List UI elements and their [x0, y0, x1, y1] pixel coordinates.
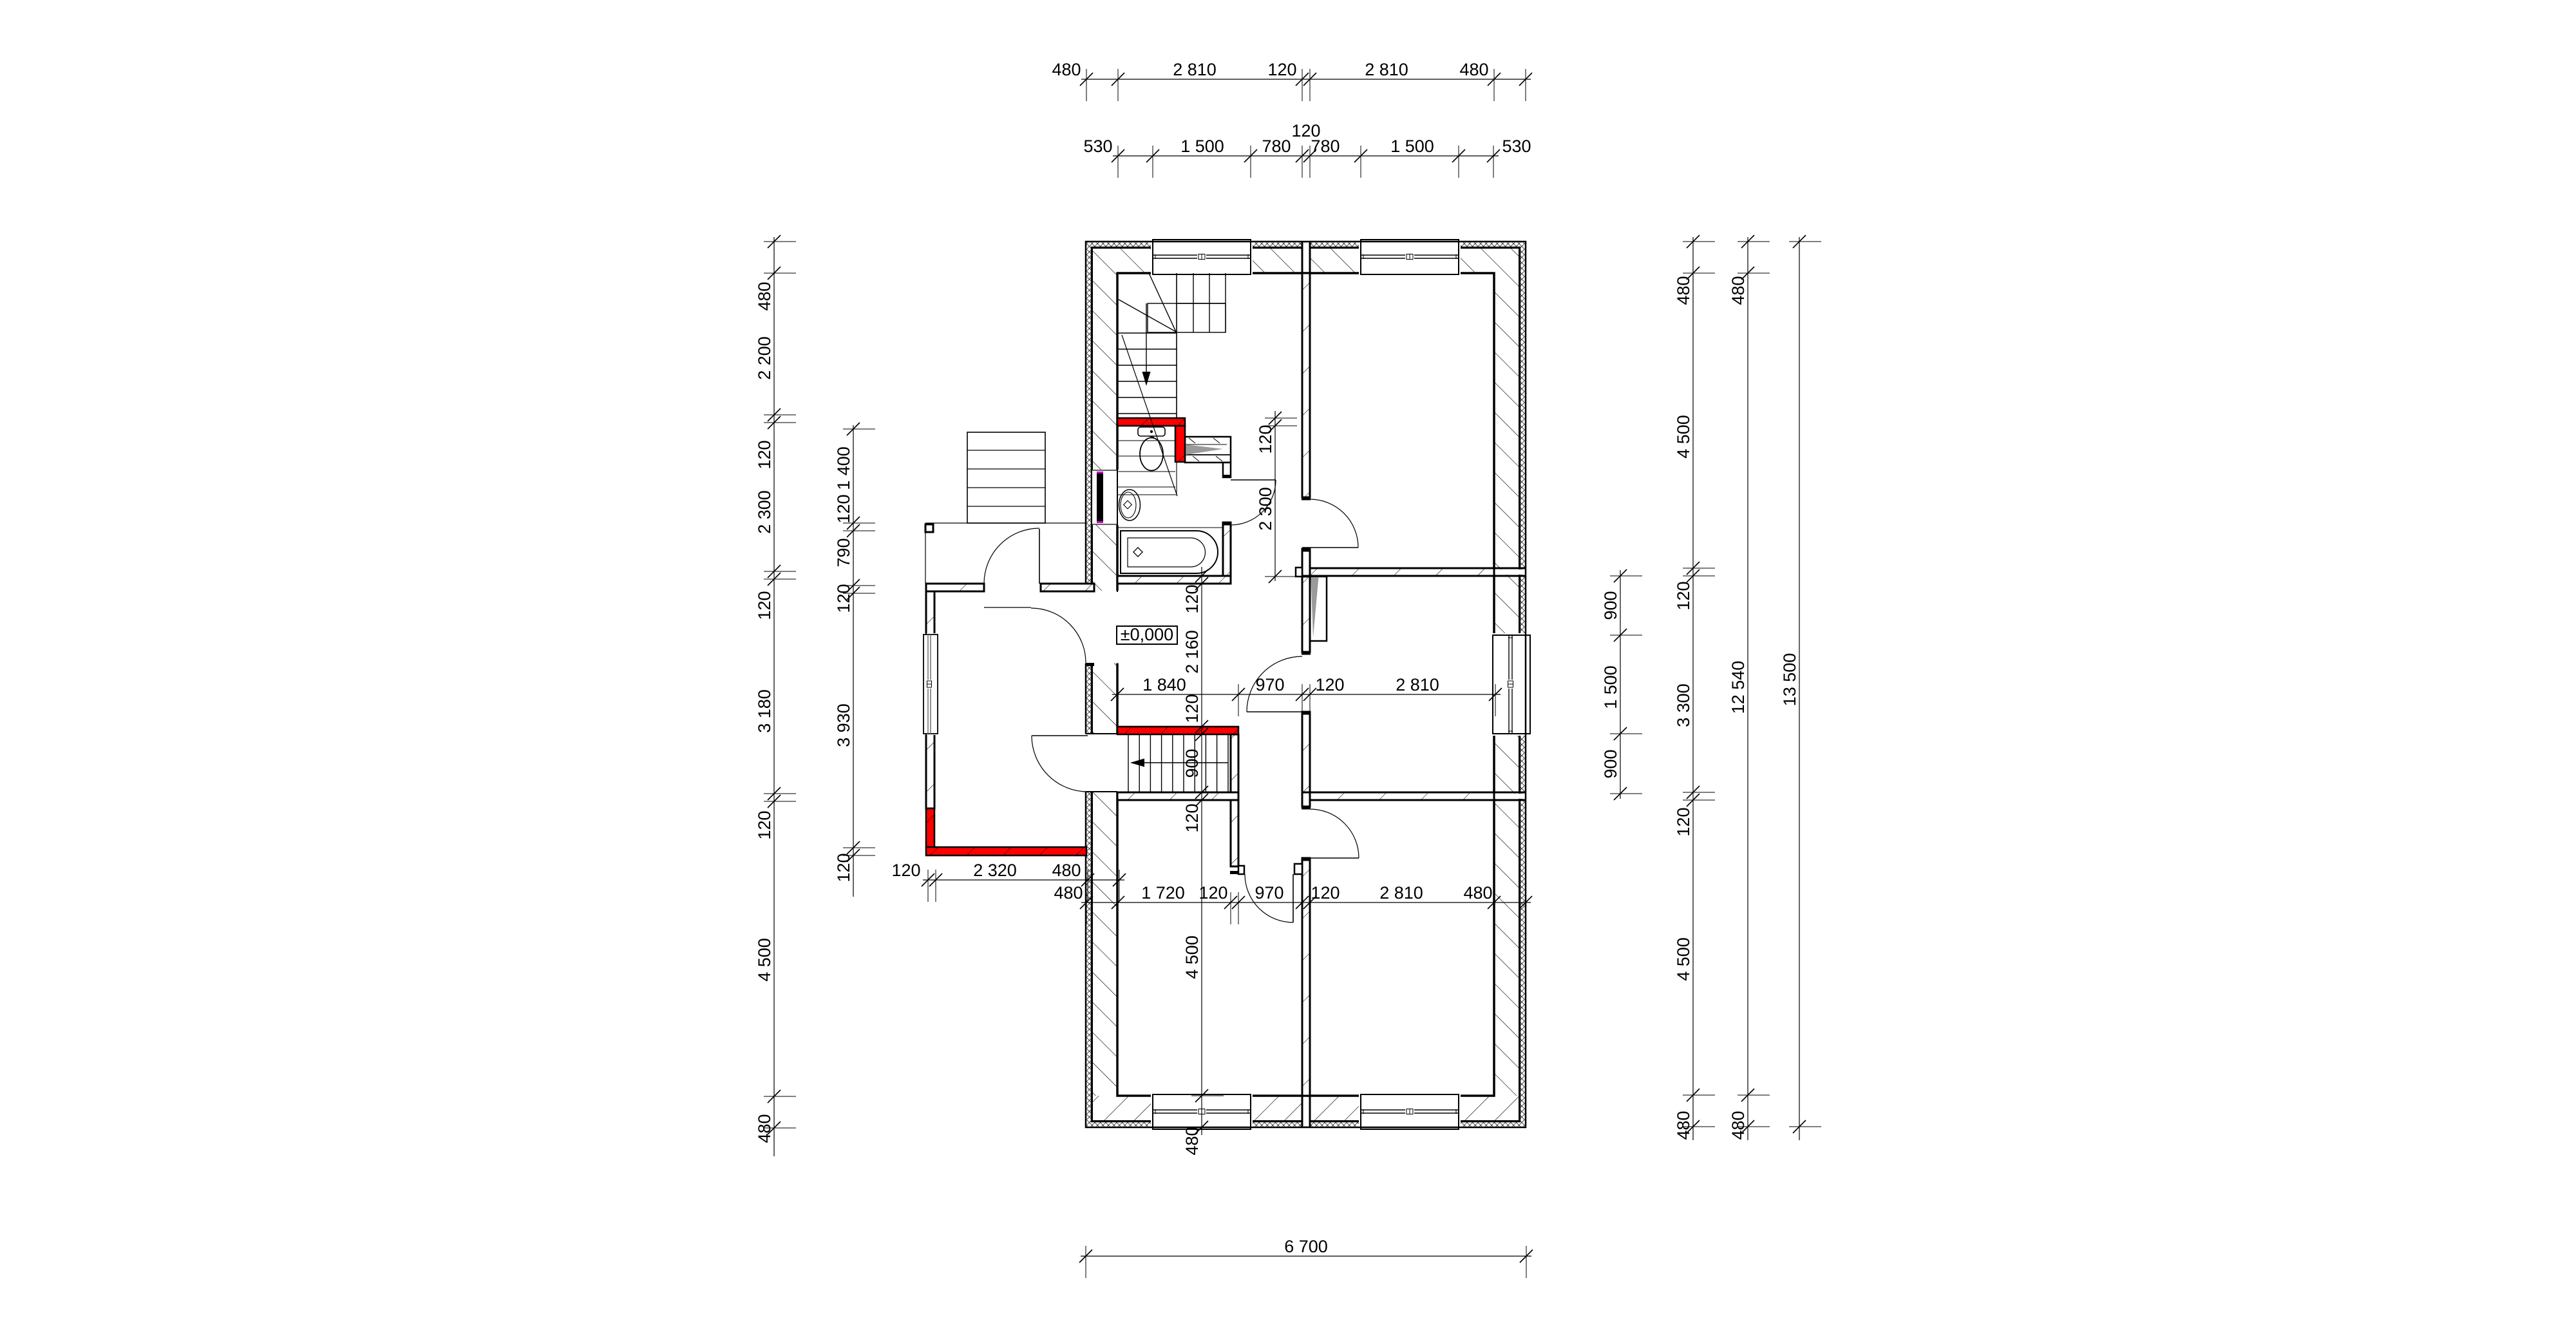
- svg-text:790: 790: [834, 538, 853, 567]
- svg-text:120: 120: [1291, 121, 1320, 140]
- svg-text:970: 970: [1255, 675, 1284, 694]
- svg-text:6 700: 6 700: [1284, 1237, 1328, 1256]
- svg-text:4 500: 4 500: [1674, 415, 1693, 459]
- svg-text:530: 530: [1083, 137, 1112, 156]
- svg-text:120: 120: [834, 494, 853, 523]
- svg-text:480: 480: [1054, 883, 1083, 902]
- svg-text:120: 120: [1315, 675, 1344, 694]
- svg-text:1 500: 1 500: [1180, 137, 1224, 156]
- svg-text:120: 120: [1198, 883, 1227, 902]
- svg-text:2 810: 2 810: [1379, 883, 1423, 902]
- svg-text:480: 480: [1182, 1126, 1202, 1155]
- svg-text:480: 480: [1674, 276, 1693, 305]
- svg-text:120: 120: [1256, 425, 1275, 453]
- svg-text:2 810: 2 810: [1396, 675, 1439, 694]
- svg-text:2 810: 2 810: [1173, 60, 1217, 79]
- svg-text:4 500: 4 500: [1182, 935, 1202, 979]
- svg-text:120: 120: [1182, 694, 1202, 723]
- svg-text:480: 480: [1459, 60, 1488, 79]
- svg-text:120: 120: [1311, 883, 1340, 902]
- svg-text:480: 480: [755, 1114, 774, 1143]
- svg-text:4 500: 4 500: [1674, 937, 1693, 981]
- svg-text:970: 970: [1255, 883, 1283, 902]
- svg-text:120: 120: [755, 810, 774, 839]
- svg-text:2 810: 2 810: [1365, 60, 1408, 79]
- svg-text:2 300: 2 300: [755, 490, 774, 534]
- svg-text:120: 120: [1267, 60, 1296, 79]
- svg-text:480: 480: [1052, 60, 1081, 79]
- svg-text:480: 480: [1728, 1111, 1748, 1140]
- svg-text:120: 120: [1182, 803, 1202, 832]
- svg-text:13 500: 13 500: [1780, 653, 1799, 707]
- svg-text:120: 120: [755, 440, 774, 469]
- svg-text:530: 530: [1502, 137, 1531, 156]
- svg-text:1 400: 1 400: [834, 446, 853, 490]
- svg-text:120: 120: [1182, 584, 1202, 613]
- svg-text:1 500: 1 500: [1390, 137, 1434, 156]
- svg-text:3 930: 3 930: [834, 703, 853, 747]
- svg-text:1 500: 1 500: [1601, 665, 1620, 709]
- svg-text:2 160: 2 160: [1182, 630, 1202, 674]
- svg-text:480: 480: [1674, 1111, 1693, 1140]
- svg-text:120: 120: [1674, 581, 1693, 610]
- svg-text:3 300: 3 300: [1674, 683, 1693, 727]
- svg-text:900: 900: [1182, 749, 1202, 778]
- svg-text:2 300: 2 300: [1256, 487, 1275, 531]
- svg-text:1 840: 1 840: [1142, 675, 1186, 694]
- svg-text:480: 480: [1052, 861, 1081, 880]
- svg-text:2 200: 2 200: [755, 336, 774, 380]
- svg-text:120: 120: [1674, 807, 1693, 836]
- svg-text:2 320: 2 320: [973, 861, 1017, 880]
- svg-text:480: 480: [755, 282, 774, 310]
- svg-text:±0,000: ±0,000: [1121, 625, 1173, 644]
- svg-text:3 180: 3 180: [755, 689, 774, 733]
- svg-text:480: 480: [1728, 276, 1748, 305]
- svg-text:780: 780: [1262, 137, 1291, 156]
- svg-text:12 540: 12 540: [1728, 661, 1748, 714]
- svg-text:1 720: 1 720: [1141, 883, 1185, 902]
- svg-text:4 500: 4 500: [755, 938, 774, 982]
- svg-text:900: 900: [1601, 749, 1620, 778]
- svg-text:120: 120: [834, 853, 853, 882]
- svg-text:120: 120: [834, 584, 853, 613]
- svg-text:120: 120: [755, 591, 774, 620]
- svg-text:120: 120: [891, 861, 920, 880]
- svg-text:480: 480: [1463, 883, 1492, 902]
- svg-text:900: 900: [1601, 591, 1620, 620]
